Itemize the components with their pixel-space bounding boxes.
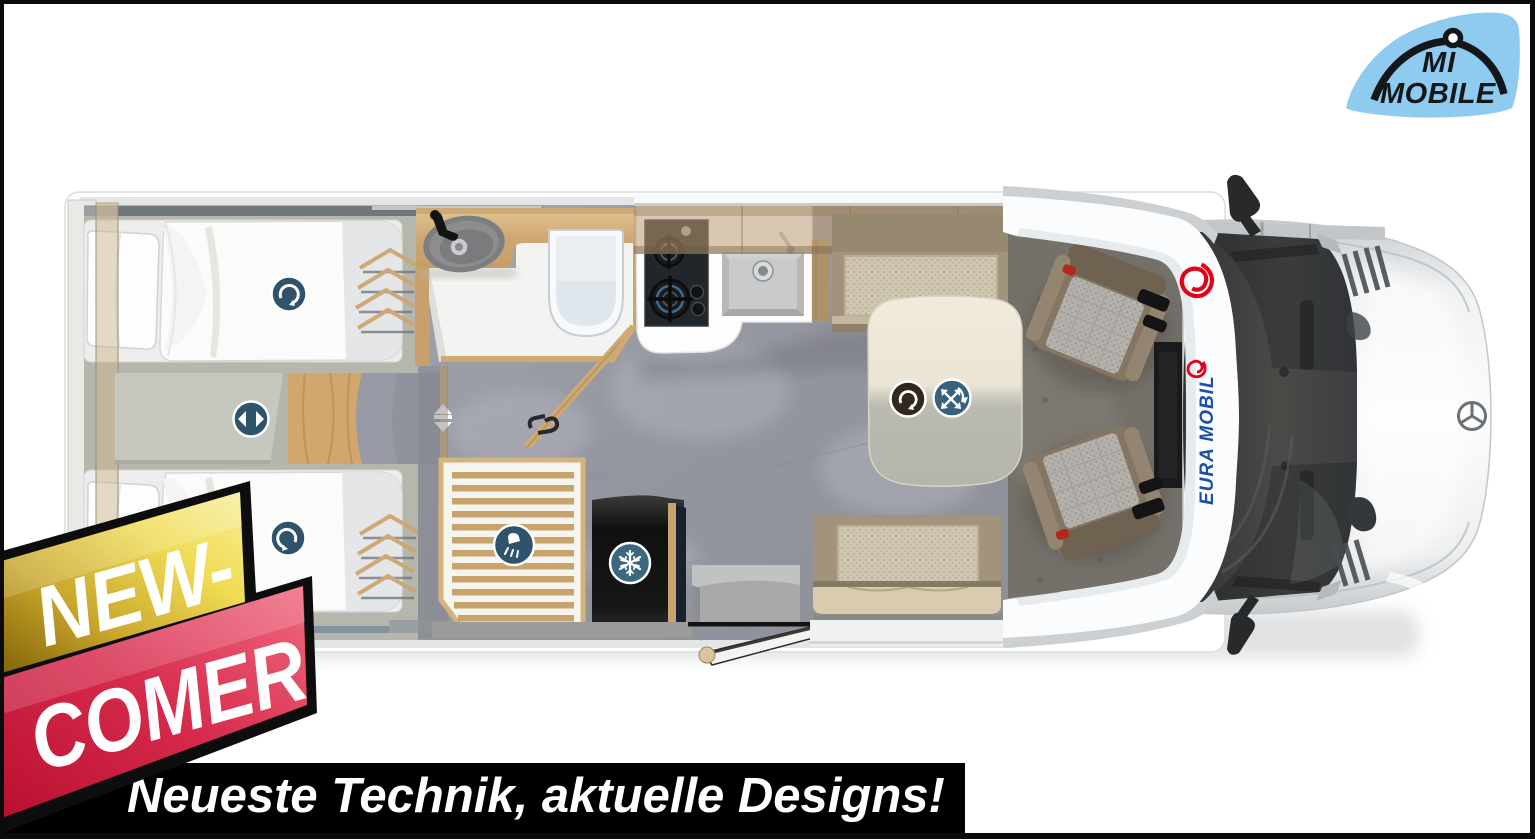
svg-text:Neueste Technik, aktuelle Desi: Neueste Technik, aktuelle Designs!	[127, 769, 945, 823]
svg-text:EURA MOBIL: EURA MOBIL	[1197, 375, 1218, 505]
svg-text:MI: MI	[1422, 47, 1456, 79]
svg-text:MOBILE: MOBILE	[1380, 78, 1497, 110]
